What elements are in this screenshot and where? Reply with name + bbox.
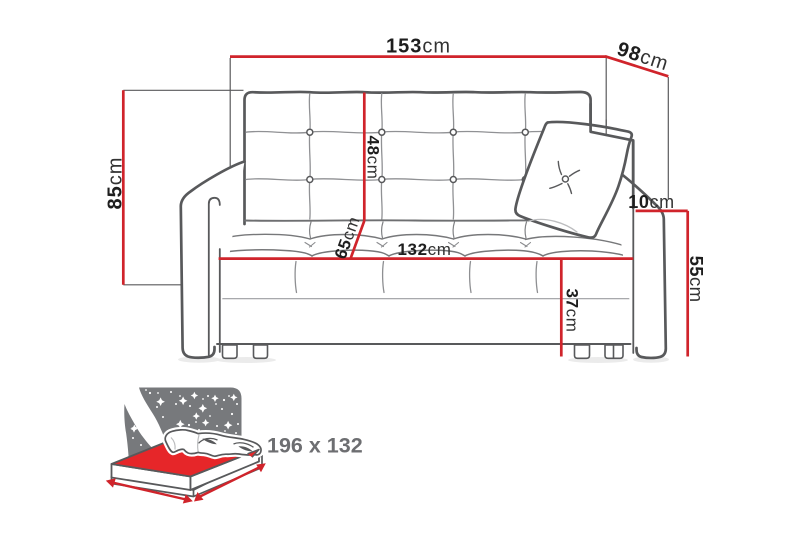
- svg-text:37cm: 37cm: [563, 289, 582, 333]
- svg-text:196 x 132: 196 x 132: [267, 434, 363, 458]
- svg-text:55cm: 55cm: [686, 256, 707, 303]
- svg-text:48cm: 48cm: [363, 136, 382, 180]
- svg-text:132cm: 132cm: [397, 240, 451, 259]
- svg-text:85cm: 85cm: [105, 157, 127, 210]
- svg-text:153cm: 153cm: [386, 36, 451, 58]
- svg-text:10cm: 10cm: [628, 192, 674, 212]
